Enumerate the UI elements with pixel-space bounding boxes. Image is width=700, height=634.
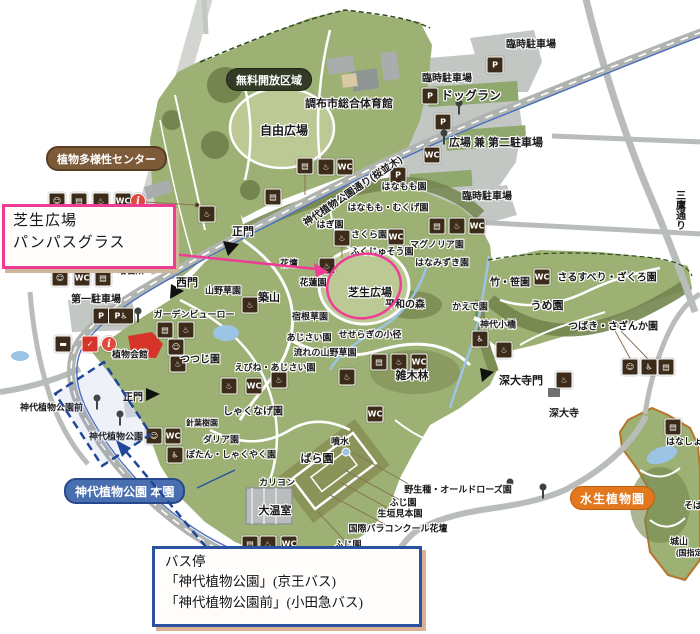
map-label: 臨時駐車場 [422,70,472,85]
baby-icon: ☺ [146,428,163,445]
parking-icon: P [435,114,452,131]
parking-icon: P [422,88,439,105]
map-label: 第一駐車場 [71,291,121,306]
water-icon: ♨ [556,372,573,389]
toilet-icon: WC [424,147,441,164]
map-label: 深大寺門 [499,372,543,388]
toilet-icon: WC [469,218,486,235]
water-icon: ♨ [318,159,335,176]
baby-icon: ☺ [622,359,639,376]
map-label: 調布市総合体育館 [305,95,393,111]
map-label: さくら園 [351,228,387,241]
map-label: 花壇 [280,257,298,270]
toilet-icon: WC [534,269,551,286]
map-label: ガーデンビューロー [153,308,234,321]
map-label: ドッグラン [441,87,501,104]
lawn-annotation-box: 芝生広場 パンパスグラス [2,204,176,269]
map-label: 平和の森 [385,296,425,311]
map-label: 正門 [232,223,254,239]
water-icon: ♨ [449,218,466,235]
lawn-annotation-line2: パンパスグラス [13,233,165,255]
bus-annotation-line1: 「神代植物公園」(京王バス) [165,572,409,592]
map-label: 広場 兼 第二駐車場 [449,134,543,150]
water-icon: ♨ [334,230,351,247]
map-label: うめ園 [531,297,564,313]
water-icon: ♨ [319,258,336,275]
map-label: カリヨン [259,476,295,489]
pole-icon [116,411,124,426]
map-label: さるすべり・ざくろ園 [557,269,656,284]
map-label: 花蓮園 [299,276,326,289]
map-label: 深大寺 [549,405,579,420]
vending-icon: ▤ [429,218,446,235]
map-label: 正門 [123,389,143,404]
area-badge: 無料開放区域 [226,68,312,91]
map-label: かえで園 [452,300,488,313]
parkacc-icon: P♿ [108,308,134,325]
map-label: 植物会館 [112,348,148,361]
lawn-annotation-line1: 芝生広場 [13,211,165,233]
check-icon: ✓ [82,336,99,353]
toilet-icon: WC [246,378,263,395]
parking-icon: P [487,57,504,74]
map-label: マグノリア園 [410,238,464,251]
accessible-icon: ♿ [167,447,184,464]
water-icon: ♨ [242,297,259,314]
toilet-icon: WC [337,159,354,176]
map-label: はなしょうぶ園 [666,435,700,448]
bench-icon: ▬ [55,336,72,353]
vending-icon: ▤ [265,189,282,206]
map-label: はなもも・むくげ園 [347,201,428,214]
bus-annotation-line2: 「神代植物公園前」(小田急バス) [165,593,409,613]
map-label: ばら園 [301,450,334,466]
map-label: せせらぎの小径 [338,328,401,341]
pole-icon [93,395,101,410]
water-icon: ♨ [271,372,288,389]
map-label: 神代小橋 [480,318,516,331]
map-label: 築山 [258,289,280,305]
toilet-icon: WC [388,229,405,246]
vending-icon: ▤ [297,158,314,175]
toilet-icon: WC [165,428,182,445]
map-label: 流れの山野草園 [293,346,356,359]
map-label: しゃくなげ園 [223,403,283,418]
map-label: 山野草園 [205,284,241,297]
water-icon: ♨ [178,322,195,339]
map-label: 国際バラコンクール花壇 [348,522,447,535]
vending-icon: ▤ [95,270,112,287]
pole-icon [134,308,142,323]
map-label: 西門 [176,274,198,290]
water-icon: ♨ [199,206,216,223]
map-label: 竹・笹園 [490,274,530,289]
map-label: (国指定 [676,548,700,559]
map-label: ふくじゅそう園 [350,245,413,258]
water-icon: ♨ [496,342,513,359]
vending-icon: ▤ [658,359,675,376]
map-label: 神代植物公園 [89,430,143,443]
pole-icon [440,130,448,145]
map-label: 大温室 [259,502,292,518]
accessible-icon: ♿ [641,359,658,376]
map-label: 三鷹通り [672,190,687,230]
bus-annotation-box: バス停 「神代植物公園」(京王バス) 「神代植物公園前」(小田急バス) [152,546,422,627]
shop-icon: ▤ [665,419,682,436]
shop-icon: ▤ [157,322,174,339]
map-label: 雑木林 [396,367,429,383]
toilet-icon: WC [74,270,91,287]
area-badge: 水生植物園 [570,486,655,510]
map-label: 生垣見本園 [377,507,422,520]
map-label: 臨時駐車場 [506,36,556,51]
map-label: そば畑 [684,499,700,512]
map-label: はなもも園 [381,180,426,193]
map-label: 神代植物公園前 [20,401,83,414]
map-label: 城山 [670,535,688,548]
map-label: 自由広場 [260,122,308,139]
vending-icon: ▤ [371,354,388,371]
map-canvas: 臨時駐車場臨時駐車場ドッグラン広場 兼 第二駐車場臨時駐車場調布市総合体育館自由… [0,0,700,634]
baby-icon: ☺ [52,270,69,287]
water-icon: ♨ [221,378,238,395]
area-badge: 植物多様性センター [46,146,167,171]
map-label: ぼたん・しゃくやく園 [186,448,276,461]
water-icon: ♨ [339,369,356,386]
area-badge: 神代植物公園 本園 [64,478,185,504]
map-label: あじさい園 [286,331,331,344]
map-label: えびね・あじさい園 [234,361,315,374]
map-label: 宿根草園 [292,310,328,323]
map-label: 野生種・オールドローズ園 [404,483,512,496]
pole-icon [539,484,547,499]
map-label: 噴水 [331,435,349,448]
bus-annotation-title: バス停 [165,552,409,572]
map-label: はなみずき園 [415,256,469,269]
map-label: つばき・さざんか園 [568,318,658,333]
accessible-icon: ♿ [472,331,489,348]
map-label: 針葉樹園 [186,418,218,429]
map-label: ダリア園 [203,433,239,446]
map-label: つつじ園 [180,351,220,366]
toilet-icon: WC [367,406,384,423]
parking-icon: P [93,308,110,325]
map-label: 臨時駐車場 [462,188,512,203]
